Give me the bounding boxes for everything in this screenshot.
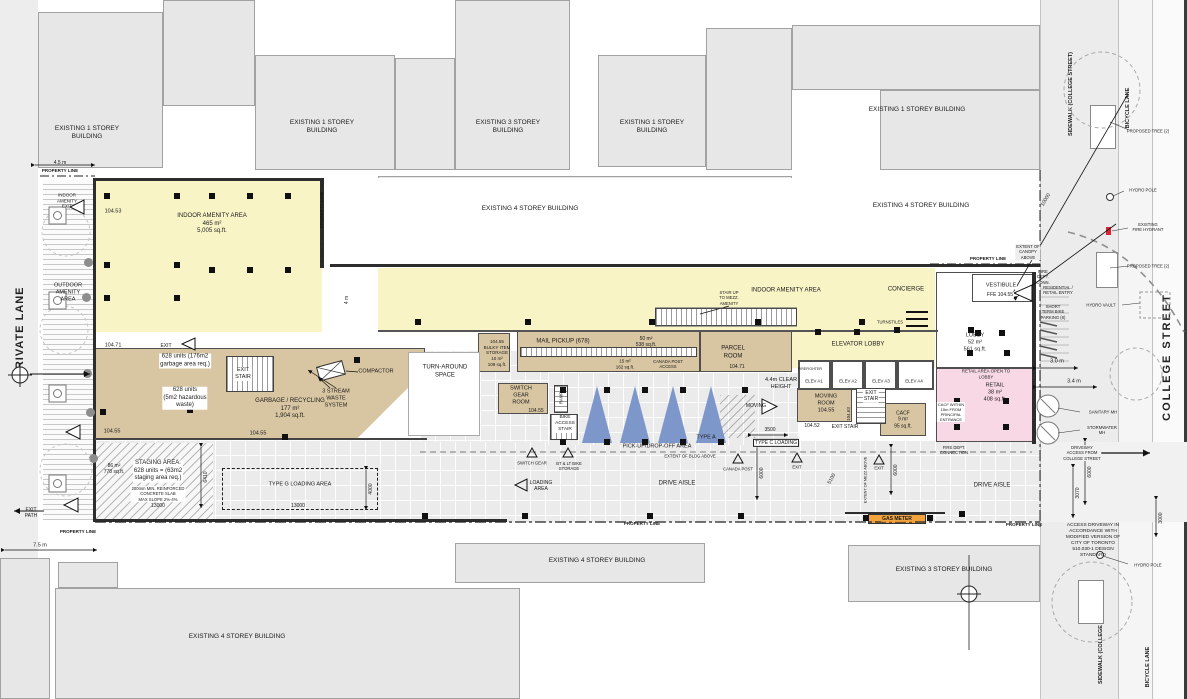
note-label: EXIT PATH — [25, 507, 38, 520]
marker-label: LOADING AREA — [530, 480, 553, 493]
note-label: 628 units (5m2 hazardous waste) — [162, 387, 207, 410]
note-label: EXISTING FIRE HYDRANT — [1133, 222, 1164, 233]
dim-label: 6000 — [759, 467, 765, 478]
note-label: 200mm MIN. REINFORCED CONCRETE SLAB MAX … — [131, 486, 186, 502]
dim-label: 4000 — [368, 483, 374, 494]
room-label-turnaround: TURN-AROUND SPACE — [423, 365, 468, 380]
note-label: 50 m² 538 sq.ft. — [636, 336, 657, 349]
dim-label: 3000 — [1158, 512, 1164, 523]
area-label-pickup: PICK-UP/DROP-OFF AREA — [623, 444, 692, 451]
dim-label: 5100 — [827, 473, 838, 486]
note-label: SHORT TERM BIKE PARKING (8) — [1041, 304, 1066, 320]
dim-label: 6410 — [203, 471, 209, 482]
note-label: HYDRO POLE — [1134, 562, 1161, 567]
equip-label-turnstiles: TURNSTILES — [877, 319, 903, 324]
note-label: TYPE A — [696, 435, 715, 442]
dim-label: 3.4 m — [1067, 379, 1081, 386]
note-label: MOVING — [746, 403, 766, 409]
annotation-layer: EXISTING 1 STOREY BUILDINGEXISTING 1 STO… — [0, 0, 1187, 699]
property-line-label: PROPERTY LINE — [970, 256, 1006, 262]
note-label: 15 m² 162 sq.ft. — [616, 358, 635, 369]
note-label: EXTENT OF MEZZ ABOVE — [864, 457, 869, 504]
dim-label: 4.5 m — [54, 160, 67, 166]
bldg-label: EXISTING 1 STOREY BUILDING — [55, 125, 119, 141]
room-label-elevator-lobby: ELEVATOR LOBBY — [832, 341, 885, 349]
bldg-label: EXISTING 4 STOREY BUILDING — [549, 557, 646, 565]
note-label: DRIVEWAY ACCESS FROM COLLEGE STREET — [1062, 445, 1101, 461]
room-label-parcel: PARCEL ROOM — [721, 346, 745, 361]
room-label-type-c-loading: TYPE C LOADING — [753, 439, 799, 447]
area-label-drive-aisle: DRIVE AISLE — [659, 480, 696, 488]
bldg-label: EXISTING 1 STOREY BUILDING — [620, 119, 684, 135]
dim-label: 6000 — [1087, 466, 1093, 477]
note-label: SANITARY MH — [1089, 409, 1117, 414]
marker-label: EXIT — [874, 465, 883, 470]
property-line-label: PROPERTY LINE — [60, 529, 96, 535]
bldg-label: EXISTING 4 STOREY BUILDING — [482, 205, 579, 213]
note-label: PROPOSED TREE (2) — [1127, 263, 1169, 268]
area-label-drive-aisle: DRIVE AISLE — [974, 482, 1011, 490]
marker-label: BT & LT BIKE STORAGE — [556, 461, 582, 472]
equip-label-waste: 3 STREAM WASTE SYSTEM — [322, 389, 350, 410]
room-label-indoor-amenity-west: INDOOR AMENITY AREA 465 m² 5,005 sq.ft. — [177, 213, 247, 236]
room-label-moving: MOVING ROOM 104.55 — [815, 394, 837, 415]
bldg-label: EXISTING 4 STOREY BUILDING — [189, 633, 286, 641]
room-label-retail: RETAIL 38 m² 408 sq.ft. — [984, 383, 1007, 404]
note-label: 86 m² 778 sq.ft. — [104, 463, 125, 476]
dim-label: 13000 — [151, 503, 165, 509]
property-line-label: PROPERTY LINE — [42, 168, 78, 174]
elevation-label: 104.55 — [104, 429, 121, 436]
note-label: CACF WITHIN 15m FROM PRINCIPAL ENTRANCE — [937, 402, 965, 422]
exit-label: EXIT — [160, 343, 171, 349]
note-label: CANADA POST ACCESS — [653, 359, 683, 370]
bldg-label: EXISTING 3 STOREY BUILDING — [476, 119, 540, 135]
note-label: PROPOSED TREE (2) — [1127, 128, 1169, 133]
property-line-label: PROPERTY LINE — [624, 521, 660, 527]
note-label: RETAIL AREA OPEN TO LOBBY — [962, 369, 1010, 380]
bldg-label: EXISTING 3 STOREY BUILDING — [896, 566, 993, 574]
note-label: HYDRO POLE — [1129, 187, 1156, 192]
note-label: FIRE DEPT. CONNECTION — [940, 445, 968, 456]
note-label: EXTENT OF BLDG ABOVE — [664, 453, 715, 458]
elevation-label: 104.71 — [105, 343, 122, 350]
note-label-staging: STAGING AREA: 628 units = (63m2 staging … — [133, 460, 183, 483]
room-label-vestibule: VESTIBULE — [985, 283, 1017, 290]
note-label: EXTENT OF CANOPY ABOVE — [1015, 244, 1040, 260]
marker-label: SWITCH GEAR — [517, 460, 547, 465]
elevation-label: 104.71 — [729, 364, 744, 370]
room-label-elev-a3: ELEV A3 — [872, 378, 890, 384]
dim-label: 3500 — [764, 427, 775, 433]
dim-label: 4 m — [344, 296, 350, 304]
note-label: HYDRO VAULT — [1086, 302, 1115, 307]
elevation-label: 104.63 — [846, 407, 852, 421]
dim-label: 10000 — [1040, 192, 1052, 207]
room-label-exit-stair: EXIT STAIR — [234, 367, 252, 381]
note-label-access-driveway: ACCESS DRIVEWAY IN ACCORDANCE WITH MODIF… — [1066, 523, 1120, 559]
room-label-indoor-amenity-exit: INDOOR AMENITY EXIT — [57, 193, 77, 210]
room-label-bike-stair: BIKE ACCESS STAIR — [554, 415, 576, 433]
bldg-label: EXISTING 4 STOREY BUILDING — [873, 202, 970, 210]
dim-label: 3.0 m — [1050, 359, 1064, 366]
room-label-ramp: RAMP — [558, 392, 563, 404]
architectural-site-plan: PRIVATE LANE COLLEGE STREET SIDEWALK (CO… — [0, 0, 1187, 699]
property-line-label: PROPERTY LINE — [1006, 522, 1042, 528]
bldg-label: EXISTING 1 STOREY BUILDING — [290, 119, 354, 135]
bldg-label: EXISTING 1 STOREY BUILDING — [869, 106, 966, 114]
elevation-label: FFE 104.55 — [986, 292, 1014, 298]
room-label-lobby: LOBBY 52 m² 561 sq.ft. — [964, 333, 987, 354]
room-label-cacf: CACF 9 m² 95 sq.ft. — [894, 411, 912, 430]
room-label-garbage: GARBAGE / RECYCLING 177 m² 1,904 sq.ft. — [255, 398, 325, 421]
note-label: STORMWATER MH — [1087, 425, 1117, 436]
equip-label-gas-meter: GAS METER — [881, 516, 913, 522]
room-label-elev-a2: ELEV A2 — [839, 378, 857, 384]
room-label-bulky: 104.55 BULKY ITEM STORAGE 10 m² 108 sq.f… — [484, 339, 511, 367]
room-label-exit-stair: EXIT STAIR — [863, 390, 879, 403]
elevation-label: 104.55 — [528, 408, 543, 414]
dim-label: 3070 — [1075, 487, 1081, 498]
property-line-label: PROPERTY LINE — [319, 192, 325, 228]
room-label-elev-a1: ELEV A1 — [805, 378, 823, 384]
room-label-exit-stair: EXIT STAIR — [832, 424, 859, 430]
elevation-label: 104.53 — [105, 209, 122, 216]
room-label-mail: MAIL PICKUP (678) — [536, 338, 589, 346]
note-label: RESIDENTIAL / RETAIL ENTRY — [1043, 285, 1073, 296]
note-label: 4.4m CLEAR HEIGHT — [765, 377, 797, 391]
room-label-switchgear: SWITCH GEAR ROOM — [510, 386, 532, 407]
elevation-label: 104.55 — [250, 431, 267, 438]
room-label-outdoor-amenity: OUTDOOR AMENITY AREA — [54, 283, 82, 304]
dim-label: 7.5 m — [33, 543, 47, 550]
elevation-label: 104.52 — [804, 423, 819, 429]
note-label: STAIR UP TO MEZZ. AMENITY — [719, 290, 738, 306]
dim-label: 13000 — [291, 503, 305, 509]
equip-label-compactor: COMPACTOR — [358, 369, 393, 376]
note-label: FIRE DEPT. CONN. — [1036, 269, 1050, 285]
note-label: 628 units (176m2 garbage area req.) — [159, 354, 211, 369]
dim-label: 6000 — [893, 464, 899, 475]
room-label-indoor-amenity-east: INDOOR AMENITY AREA — [751, 287, 821, 295]
marker-label: EXIT — [792, 464, 801, 469]
marker-label: CANADA POST — [723, 466, 753, 471]
room-label-concierge: CONCIERGE — [888, 286, 924, 294]
room-label-elev-a4: ELEV A4 — [905, 378, 923, 384]
note-label: FIREFIGHTER — [798, 367, 822, 371]
room-label-type-g-loading: TYPE G LOADING AREA — [269, 482, 332, 489]
